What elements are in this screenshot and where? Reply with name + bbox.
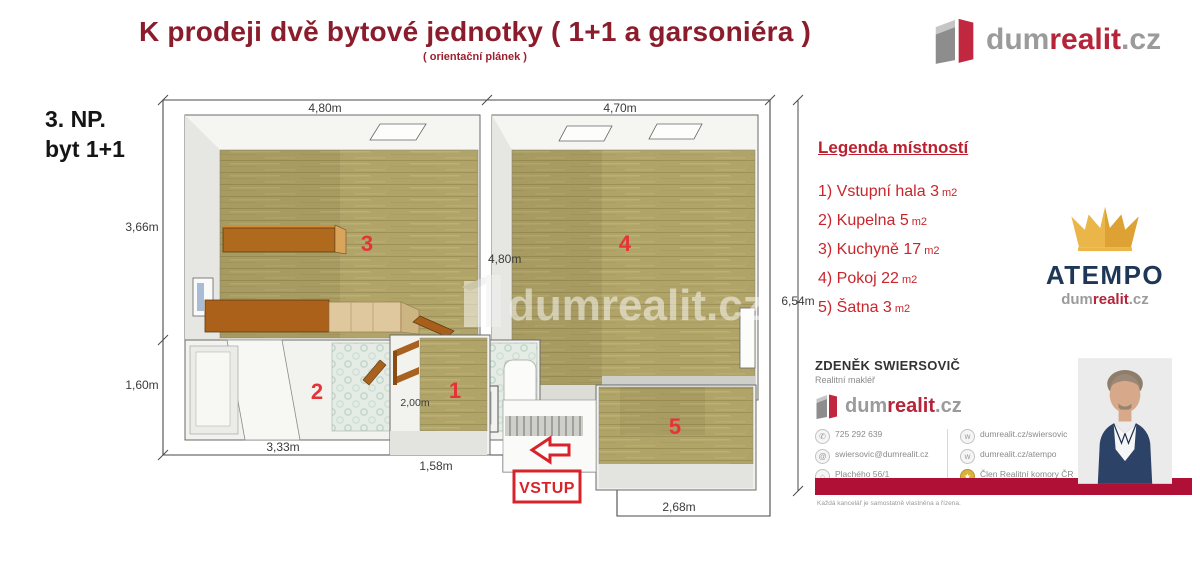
atempo-sub-wordmark: dumrealit.cz (1030, 291, 1180, 308)
legend-title: Legenda místností (818, 138, 968, 158)
floor-label: 3. NP. byt 1+1 (45, 104, 125, 164)
agent-web-profile: dumrealit.cz/swiersovic (980, 429, 1067, 439)
room-number-3: 3 (361, 231, 373, 256)
floor-plan: 3 4 4,80m (120, 88, 820, 538)
room-number-4: 4 (619, 231, 632, 256)
legend-item-text: 3) Kuchyně 17 (818, 241, 921, 258)
legend-item-text: 5) Šatna 3 (818, 299, 892, 316)
floor-label-line1: 3. NP. (45, 104, 125, 134)
watermark-text: dumrealit.cz (508, 281, 765, 330)
legend-item-4: 4) Pokoj 22m2 (818, 265, 968, 294)
kitchen-counter (205, 300, 329, 332)
legend-item-5: 5) Šatna 3m2 (818, 294, 968, 323)
flyer-canvas: K prodeji dvě bytové jednotky ( 1+1 a ga… (0, 0, 1200, 580)
room-number-1: 1 (449, 378, 461, 403)
atempo-name: ATEMPO (1030, 260, 1180, 291)
dim-left-lower: 1,60m (125, 378, 158, 392)
web-icon: w (960, 449, 975, 464)
dim-left-upper: 3,66m (125, 220, 158, 234)
legend-item-unit: m2 (924, 245, 939, 257)
dim-bottom-left: 3,33m (266, 440, 299, 454)
agent-email: swiersovic@dumrealit.cz (835, 449, 929, 459)
dumrealit-logo: dumrealit.cz (933, 14, 1161, 66)
legend-item-unit: m2 (895, 303, 910, 315)
brand-cz: .cz (935, 395, 962, 417)
email-row: @ swiersovic@dumrealit.cz (815, 449, 943, 464)
dumrealit-box-icon (815, 392, 839, 420)
room-number-5: 5 (669, 414, 681, 439)
room-number-2: 2 (311, 379, 323, 404)
brand-realit: realit (1049, 23, 1121, 56)
agent-photo (1078, 357, 1172, 485)
brand-cz: .cz (1129, 291, 1149, 308)
phone-row: ✆ 725 292 639 (815, 429, 943, 444)
legend-item-1: 1) Vstupní hala 3m2 (818, 178, 968, 207)
card-tagline: Každá kancelář je samostatně vlastněna a… (817, 500, 961, 507)
email-icon: @ (815, 449, 830, 464)
vstup-label: VSTUP (519, 480, 575, 497)
web-profile-row: w dumrealit.cz/swiersovic (960, 429, 1088, 444)
room-closet: 5 (596, 385, 756, 490)
skylight-icon (649, 124, 702, 139)
page-subtitle: ( orientační plánek ) (130, 51, 820, 63)
atempo-logo: ATEMPO dumrealit.cz (1030, 203, 1180, 308)
dim-hall-bottom: 1,58m (419, 459, 452, 473)
entrance-area: VSTUP (503, 400, 596, 502)
brand-dum: dum (1061, 291, 1093, 308)
legend-item-text: 4) Pokoj 22 (818, 270, 899, 287)
agent-web-office: dumrealit.cz/atempo (980, 449, 1057, 459)
dim-right-side: 6,54m (781, 294, 814, 308)
dim-top-left: 4,80m (308, 101, 341, 115)
skylight-icon (559, 126, 612, 141)
legend-item-text: 2) Kupelna 5 (818, 212, 909, 229)
dumrealit-box-icon (933, 14, 977, 66)
header: K prodeji dvě bytové jednotky ( 1+1 a ga… (130, 16, 820, 63)
legend-item-text: 1) Vstupní hala 3 (818, 183, 939, 200)
web-icon: w (960, 429, 975, 444)
phone-icon: ✆ (815, 429, 830, 444)
room-kitchen: 3 (185, 115, 480, 340)
dim-top-right: 4,70m (603, 101, 636, 115)
brand-dum: dum (845, 395, 887, 417)
dim-hall-side: 2,00m (400, 397, 429, 409)
legend: Legenda místností 1) Vstupní hala 3m2 2)… (818, 138, 968, 323)
dumrealit-wordmark: dumrealit.cz (986, 25, 1161, 55)
legend-item-unit: m2 (902, 274, 917, 286)
dim-room4-left: 4,80m (488, 252, 521, 266)
brand-cz: .cz (1121, 23, 1161, 56)
watermark: dumrealit.cz (462, 275, 765, 330)
dim-bottom-right: 2,68m (662, 500, 695, 514)
room-hall: 1 2,00m (390, 335, 490, 455)
legend-item-unit: m2 (942, 187, 957, 199)
skylight-icon (370, 124, 426, 140)
floor-label-line2: byt 1+1 (45, 134, 125, 164)
web-office-row: w dumrealit.cz/atempo (960, 449, 1088, 464)
legend-item-3: 3) Kuchyně 17m2 (818, 236, 968, 265)
crown-icon (1060, 203, 1150, 253)
dumrealit-wordmark: dumrealit.cz (845, 396, 962, 416)
brand-realit: realit (887, 395, 935, 417)
agent-phone: 725 292 639 (835, 429, 882, 439)
brand-dum: dum (986, 23, 1049, 56)
brand-realit: realit (1093, 291, 1129, 308)
agent-card: ZDENĚK SWIERSOVIČ Realitní makléř dumrea… (815, 352, 1192, 517)
page-title: K prodeji dvě bytové jednotky ( 1+1 a ga… (130, 16, 820, 48)
legend-item-2: 2) Kupelna 5m2 (818, 207, 968, 236)
legend-item-unit: m2 (912, 216, 927, 228)
